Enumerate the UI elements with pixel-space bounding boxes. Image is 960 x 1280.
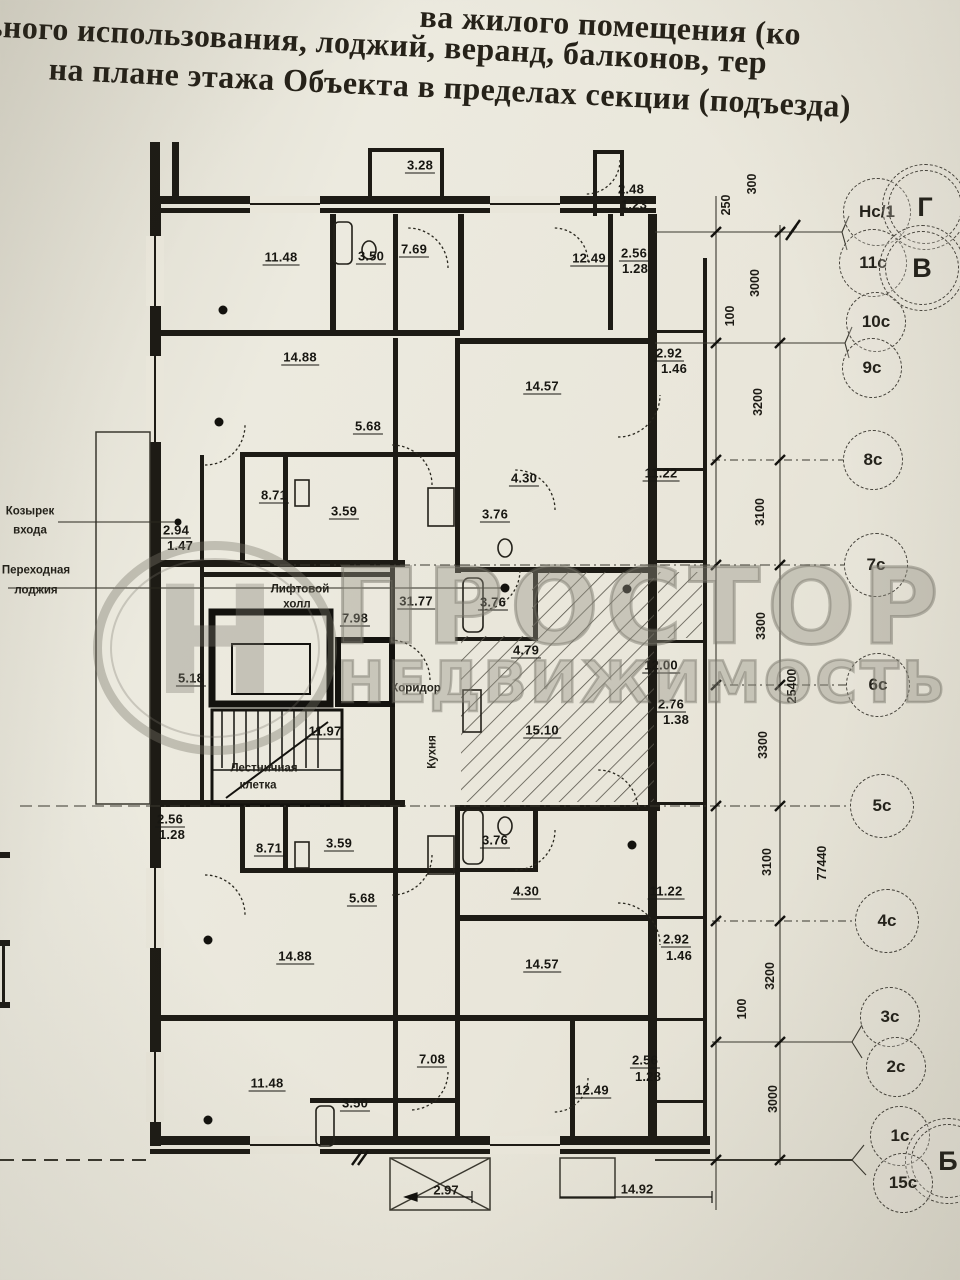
scanned-document-page: { "header": { "line1": "ва жилого помеще… bbox=[0, 0, 960, 1280]
room-area-label: 2.92 bbox=[654, 347, 684, 362]
dimension-label: 300 bbox=[746, 174, 759, 195]
axis-marker: 5с bbox=[850, 774, 914, 838]
room-area-label: 3.59 bbox=[324, 837, 354, 852]
room-area-label: 11.48 bbox=[263, 251, 300, 266]
dimension-label: 3100 bbox=[754, 498, 767, 526]
dimension-label: 3000 bbox=[749, 269, 762, 297]
room-area-label: 1.38 bbox=[661, 713, 691, 727]
room-area-label: 8.71 bbox=[259, 489, 289, 504]
room-area-label: 3.50 bbox=[340, 1097, 370, 1112]
room-area-label: 4.79 bbox=[511, 644, 541, 659]
room-area-label: 14.57 bbox=[523, 380, 561, 395]
room-area-label: 2.94 bbox=[161, 524, 191, 539]
dimension-label: 77440 bbox=[816, 846, 829, 881]
room-area-label: 1.23 bbox=[619, 198, 649, 212]
room-area-label: 14.88 bbox=[281, 351, 319, 366]
room-area-label: 1.46 bbox=[664, 949, 694, 963]
room-area-label: 1.28 bbox=[620, 262, 650, 276]
room-area-label: 12.00 bbox=[642, 659, 680, 674]
dimension-label: 3200 bbox=[752, 388, 765, 416]
room-area-label: 14.88 bbox=[276, 950, 314, 965]
dimension-label: 25400 bbox=[786, 669, 799, 704]
axis-marker: 8с bbox=[843, 430, 903, 490]
plan-annotations-layer: 3.282.481.2311.483.507.6912.492.561.2814… bbox=[0, 0, 960, 1280]
axis-marker: 2с bbox=[866, 1037, 926, 1097]
room-name-label: Коридор bbox=[391, 683, 441, 695]
room-name-label: Кухня bbox=[427, 735, 439, 769]
room-area-label: 7.08 bbox=[417, 1053, 447, 1068]
dimension-label: 250 bbox=[720, 195, 733, 216]
dimension-label: 2.97 bbox=[433, 1184, 458, 1197]
room-area-label: 11.48 bbox=[249, 1077, 286, 1092]
room-area-label: 5.18 bbox=[176, 672, 206, 687]
room-area-label: 14.57 bbox=[523, 958, 561, 973]
room-area-label: 3.76 bbox=[478, 596, 508, 611]
room-area-label: 3.59 bbox=[329, 505, 359, 520]
room-area-label: 2.76 bbox=[656, 698, 686, 713]
room-area-label: 4.30 bbox=[509, 472, 539, 487]
side-label: входа bbox=[13, 525, 47, 537]
room-area-label: 1.28 bbox=[633, 1070, 663, 1084]
room-area-label: 11.22 bbox=[643, 467, 680, 482]
room-area-label: 2.56 bbox=[630, 1054, 660, 1069]
dimension-label: 3200 bbox=[764, 962, 777, 990]
room-name-label: холл bbox=[283, 599, 310, 611]
room-area-label: 1.47 bbox=[165, 539, 195, 553]
room-area-label: 1.28 bbox=[157, 828, 187, 842]
dimension-label: 3300 bbox=[755, 612, 768, 640]
axis-marker: 4с bbox=[855, 889, 919, 953]
dimension-label: 100 bbox=[736, 999, 749, 1020]
room-area-label: 12.49 bbox=[570, 252, 608, 267]
room-area-label: 7.98 bbox=[340, 612, 370, 627]
dimension-label: 3300 bbox=[757, 731, 770, 759]
room-area-label: 3.76 bbox=[480, 834, 510, 849]
dimension-label: 100 bbox=[724, 306, 737, 327]
dimension-label: 3100 bbox=[761, 848, 774, 876]
room-area-label: 5.68 bbox=[347, 892, 377, 907]
room-area-label: 7.69 bbox=[399, 243, 429, 258]
room-area-label: 2.48 bbox=[616, 183, 646, 198]
room-area-label: 2.56 bbox=[619, 247, 649, 262]
axis-marker: 9с bbox=[842, 338, 902, 398]
room-area-label: 3.28 bbox=[405, 159, 435, 174]
side-label: Козырек bbox=[6, 506, 55, 518]
room-area-label: 31.77 bbox=[397, 595, 435, 610]
room-area-label: 3.50 bbox=[356, 250, 386, 265]
room-area-label: 8.71 bbox=[254, 842, 284, 857]
side-label: Переходная bbox=[2, 565, 70, 577]
dimension-label: 14.92 bbox=[621, 1183, 654, 1196]
side-label: лоджия bbox=[14, 585, 57, 597]
axis-marker: 7с bbox=[844, 533, 908, 597]
room-name-label: клетка bbox=[239, 780, 276, 792]
room-area-label: 2.92 bbox=[661, 933, 691, 948]
room-area-label: 12.49 bbox=[573, 1084, 611, 1099]
room-area-label: 1.46 bbox=[659, 362, 689, 376]
room-area-label: 4.30 bbox=[511, 885, 541, 900]
room-area-label: 11.22 bbox=[648, 885, 685, 900]
room-name-label: Лестничная bbox=[230, 763, 297, 775]
axis-marker: 15с bbox=[873, 1153, 933, 1213]
axis-marker: 6с bbox=[846, 653, 910, 717]
room-area-label: 5.68 bbox=[353, 420, 383, 435]
dimension-label: 3000 bbox=[767, 1085, 780, 1113]
room-area-label: 15.10 bbox=[523, 724, 561, 739]
room-area-label: 11.97 bbox=[307, 725, 344, 740]
room-area-label: 2.56 bbox=[155, 813, 185, 828]
room-name-label: Лифтовой bbox=[271, 584, 330, 596]
room-area-label: 3.76 bbox=[480, 508, 510, 523]
